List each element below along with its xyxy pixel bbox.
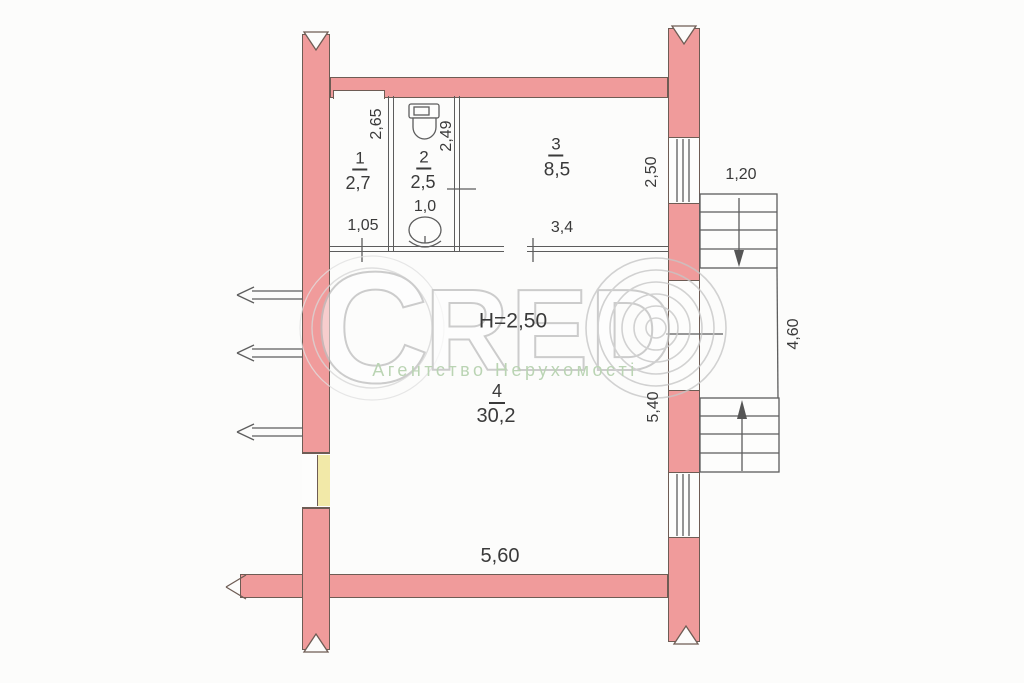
room-4-area: 30,2 [477,406,516,426]
floor-plan-canvas: C RED Агентство Нерухомості 2,652,4912,7… [0,0,1024,683]
room-2-area: 2,5 [410,173,435,191]
room-1-number: 1 [352,150,367,171]
labels-layer: 2,652,4912,722,538,51,051,03,42,501,204,… [0,0,1024,683]
dim-5-40: 5,40 [646,391,662,422]
room-1-area: 2,7 [345,174,370,192]
room-2-number: 2 [416,149,431,170]
dim-1-0: 1,0 [414,199,436,215]
dim-1-05: 1,05 [347,218,378,234]
dim-4-60: 4,60 [786,318,802,349]
room-3-number: 3 [548,136,563,157]
room-3-area: 8,5 [544,161,570,180]
dim-1-20: 1,20 [725,167,756,183]
dim-3-4: 3,4 [551,220,573,236]
dim-5-60: 5,60 [481,546,520,566]
dim-2-65: 2,65 [369,108,385,139]
room-4-number: 4 [489,382,505,404]
ceiling-height-label: H=2,50 [479,311,547,332]
dim-2-50-right: 2,50 [644,156,660,187]
dim-2-49: 2,49 [439,120,455,151]
